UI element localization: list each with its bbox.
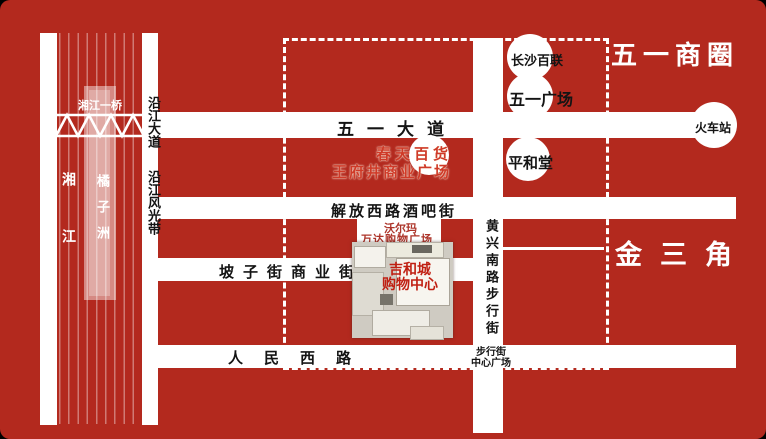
building-shadow (380, 294, 393, 305)
bridge-label: 湘江一桥 (64, 97, 136, 113)
wangfujing-label: 王府井商业广场 (332, 161, 451, 182)
wuyi-avenue-label: 五一大道 (322, 115, 472, 140)
map-canvas: 湘江一桥 湘江 橘子洲 沿江大道 沿江风光带 五一大道 解放西路酒吧街 坡子街商… (0, 0, 766, 439)
river-name-label: 湘江 (58, 172, 78, 286)
huangxing-south-label: 黄兴南路步行街 (481, 219, 500, 338)
riverside-belt-label: 沿江风光带 (143, 170, 162, 235)
pozi-street-label: 坡子街商业街 (219, 261, 363, 282)
wuyi-square-label: 五一广场 (509, 86, 573, 110)
pedestrian-street-label: 步行街 (459, 347, 523, 358)
changsha-bailian-label: 长沙百联 (511, 50, 563, 69)
building-roof-dark (412, 245, 432, 253)
center-square-label: 中心广场 (459, 358, 523, 369)
pinghetang-label: 平和堂 (508, 152, 553, 173)
mall-name-label: 吉和城 (378, 263, 442, 277)
building-block (410, 326, 444, 340)
riverside-avenue-label: 沿江大道 (143, 96, 162, 148)
golden-triangle-label: 金三角 (615, 233, 750, 272)
mall-type-label: 购物中心 (378, 278, 442, 292)
renmin-west-label: 人民西路 (228, 347, 372, 368)
road-left-bank (40, 33, 57, 425)
orange-isle-label: 橘子洲 (92, 174, 111, 252)
bridge-truss-graphic (55, 110, 145, 140)
business-circle-label: 五一商圈 (611, 35, 739, 72)
train-station-label: 火车站 (695, 119, 731, 136)
